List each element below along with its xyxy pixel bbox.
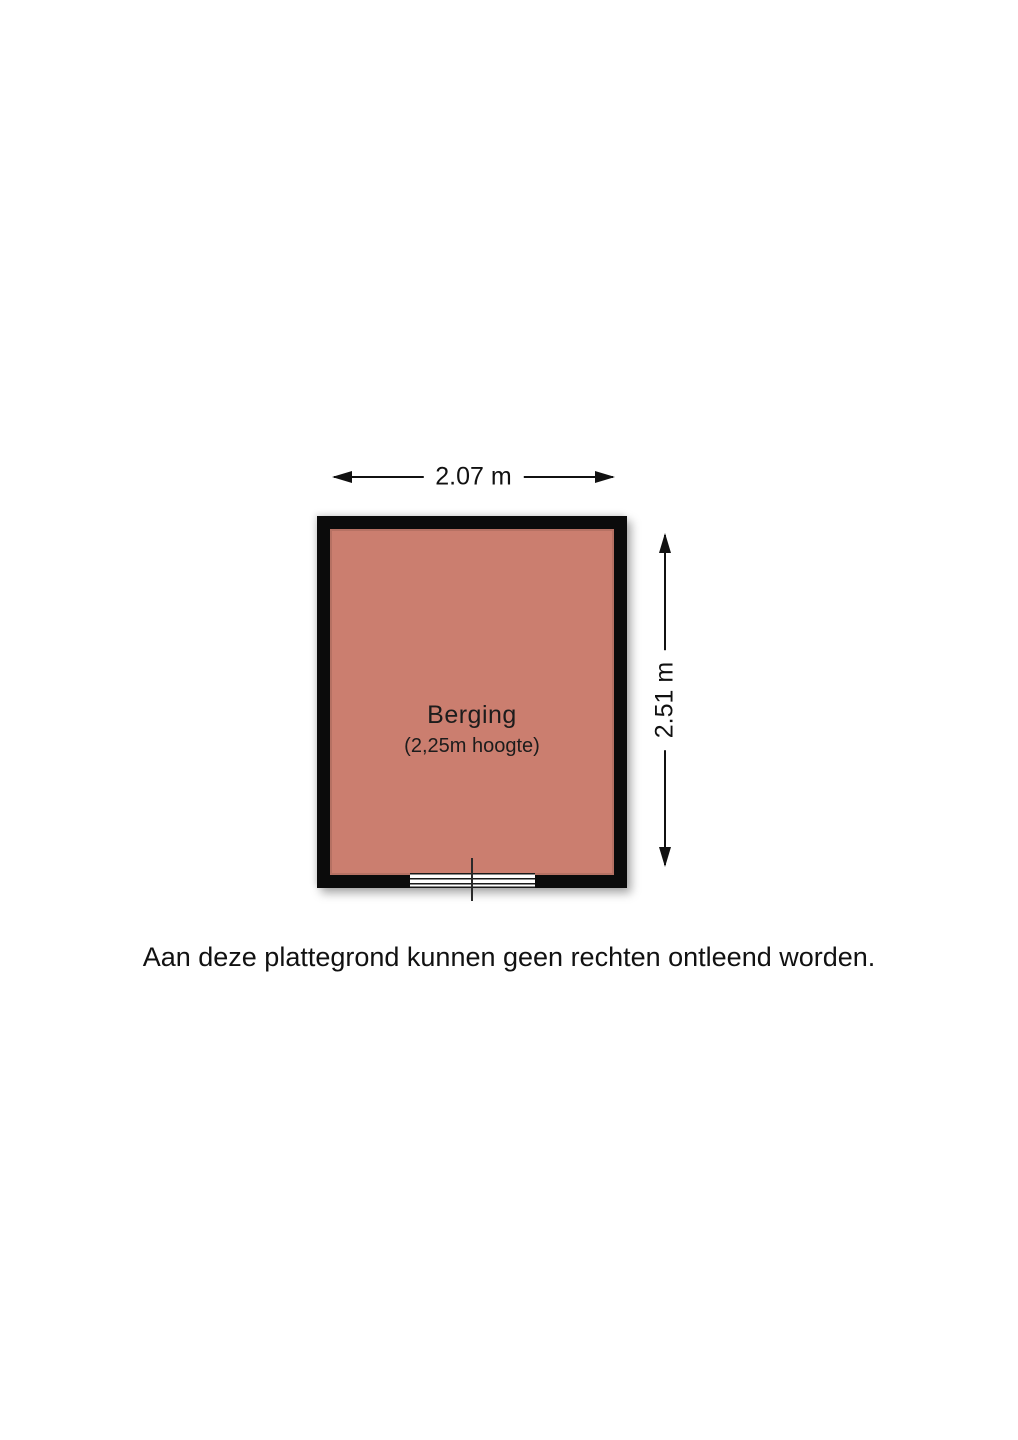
arrow-up-icon: [659, 533, 671, 553]
arrow-right-icon: [595, 471, 615, 483]
arrow-down-icon: [659, 847, 671, 867]
room-floor: Berging (2,25m hoogte): [330, 529, 614, 875]
room-berging: Berging (2,25m hoogte): [317, 516, 627, 888]
door-center-line: [471, 858, 473, 901]
width-dimension-label: 2.07 m: [423, 463, 523, 492]
room-height-label: (2,25m hoogte): [330, 734, 614, 758]
height-dimension-label: 2.51 m: [651, 650, 680, 750]
room-name-label: Berging: [330, 700, 614, 730]
disclaimer-text: Aan deze plattegrond kunnen geen rechten…: [0, 941, 1018, 974]
floorplan-page: 2.07 m Berging (2,25m hoogte) 2.51 m Aan…: [0, 0, 1018, 1440]
height-dimension: 2.51 m: [656, 533, 674, 867]
arrow-left-icon: [332, 471, 352, 483]
width-dimension: 2.07 m: [332, 468, 615, 486]
